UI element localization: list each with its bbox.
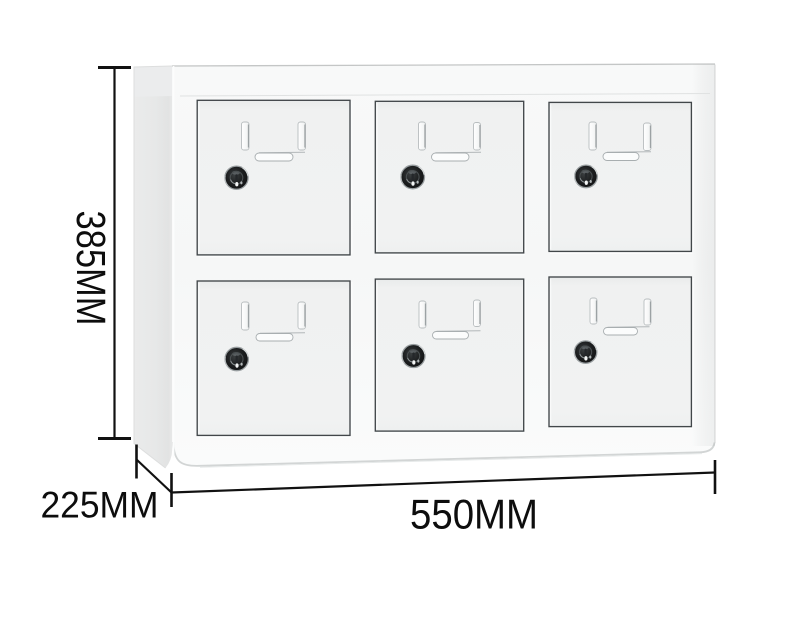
svg-text:225MM: 225MM: [41, 485, 159, 526]
svg-text:385MM: 385MM: [68, 211, 114, 326]
svg-text:550MM: 550MM: [410, 491, 538, 538]
